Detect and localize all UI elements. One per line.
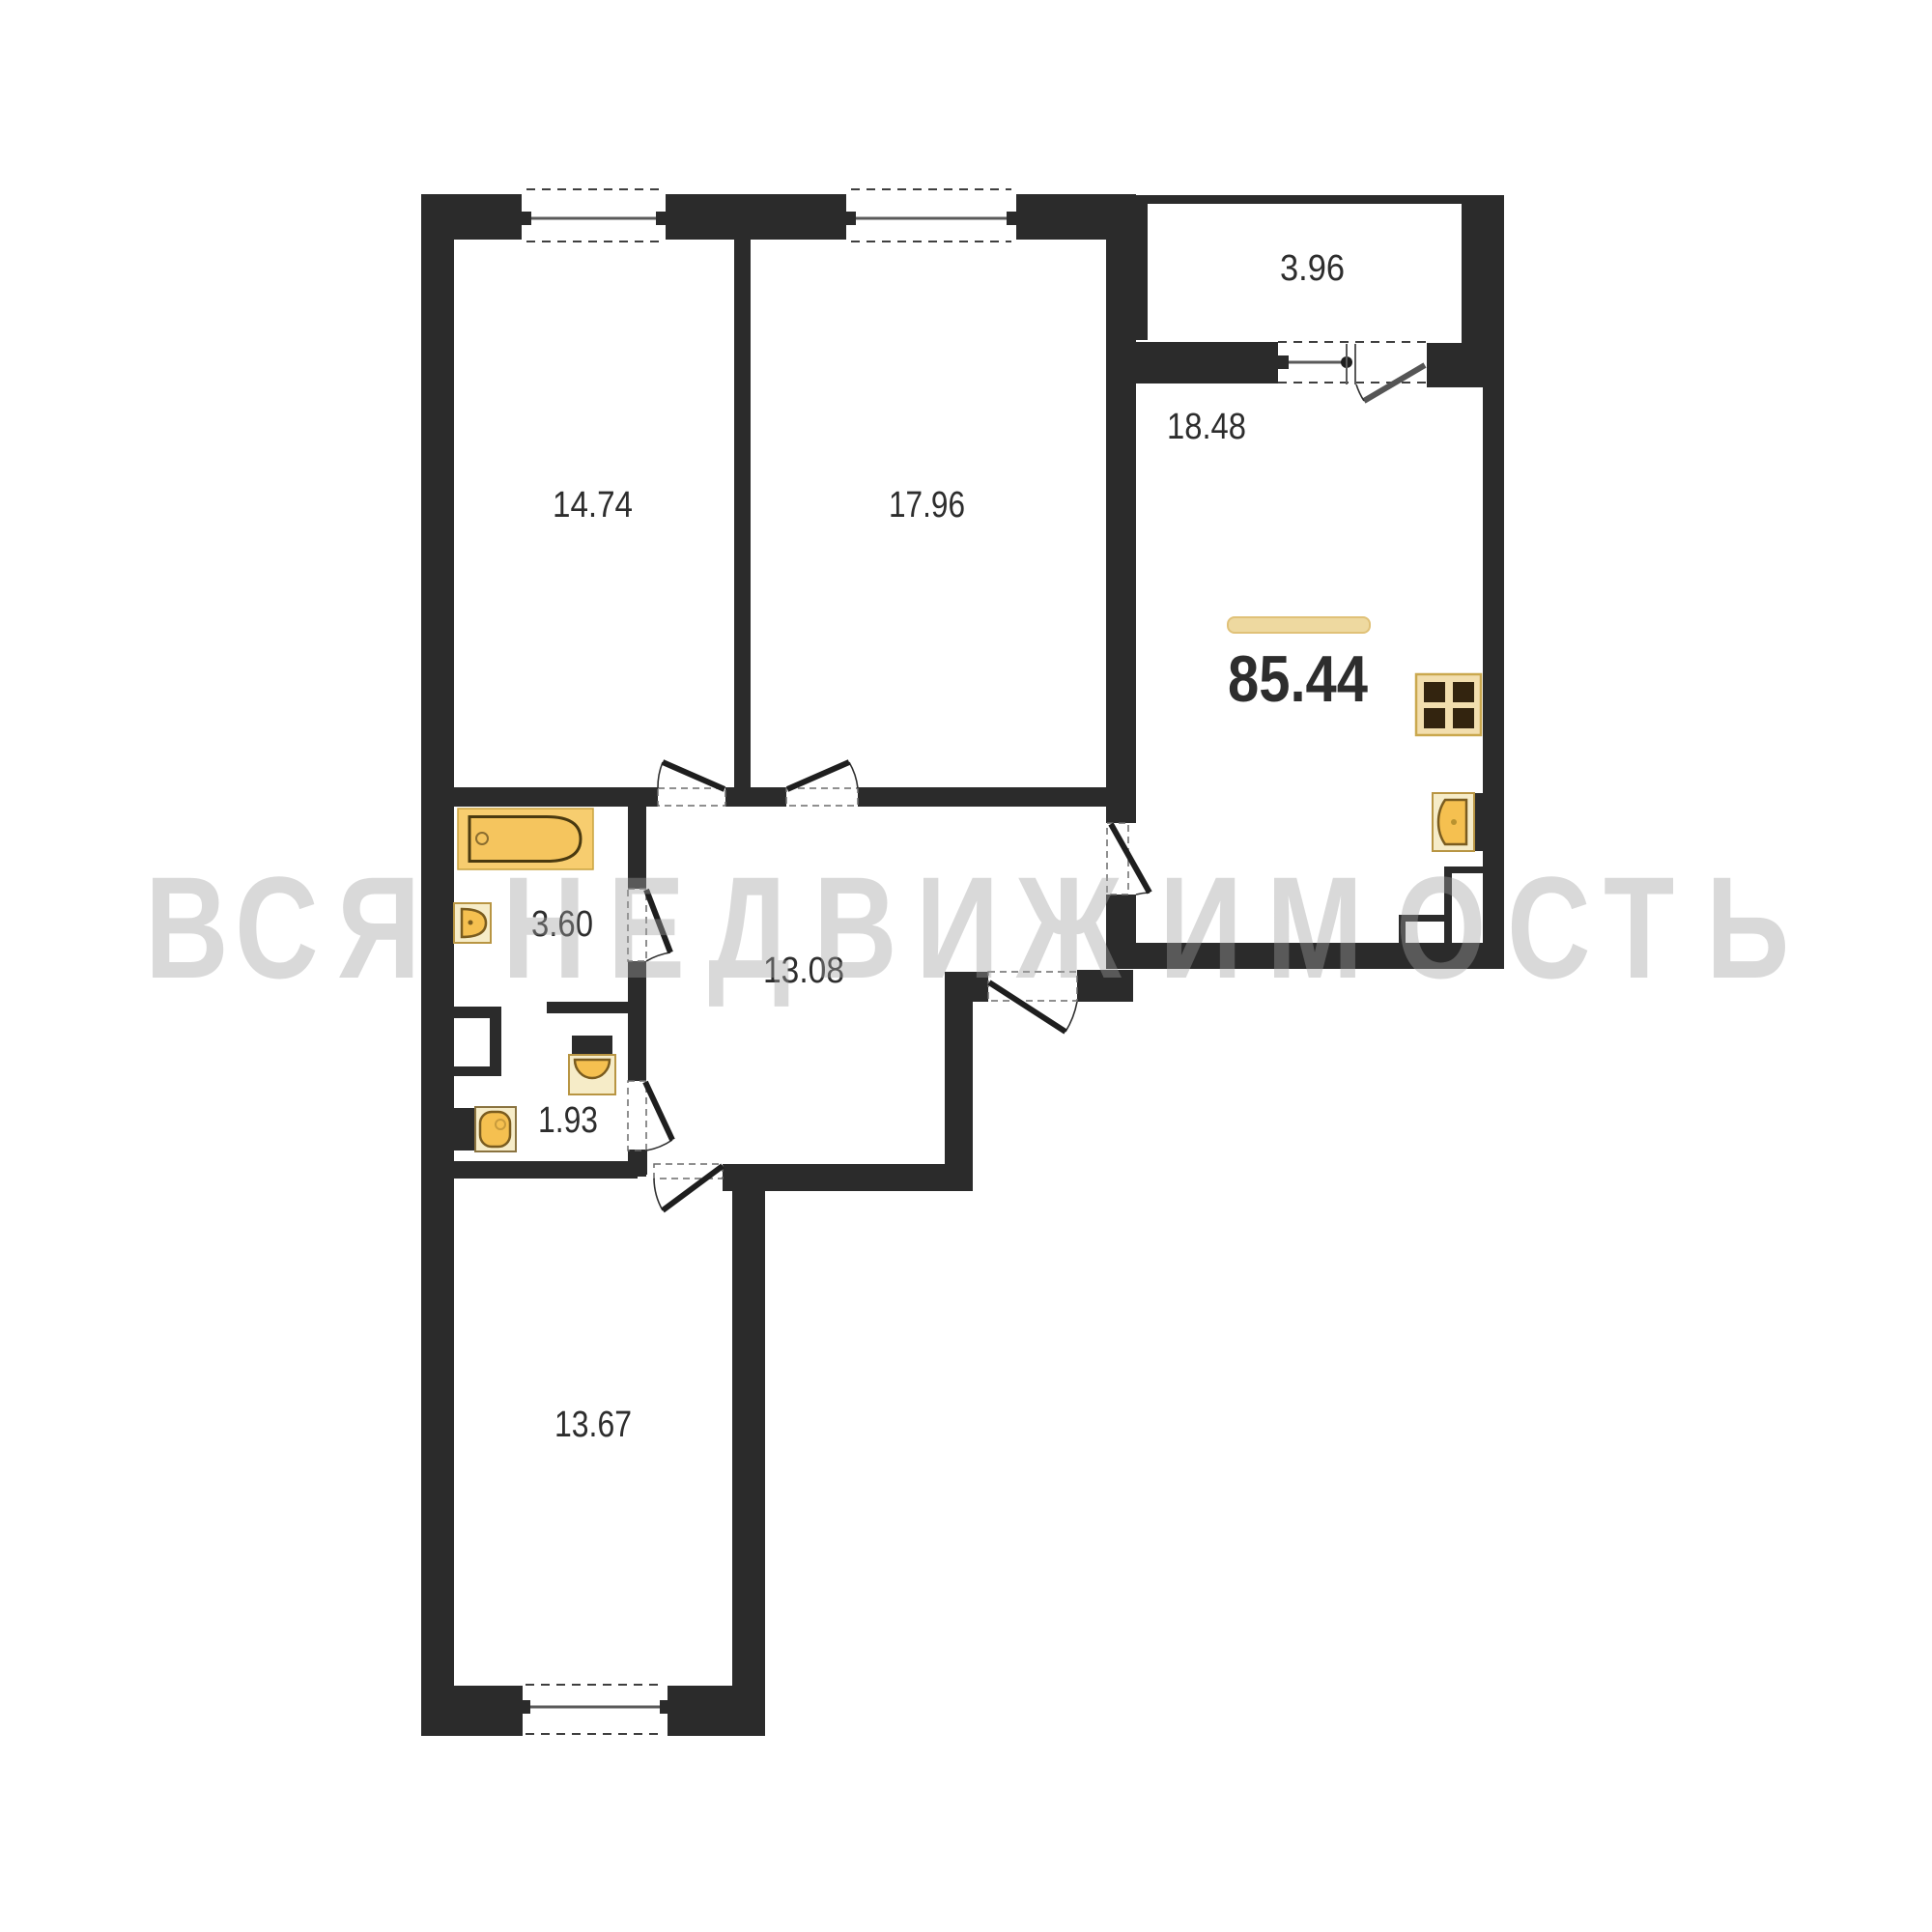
svg-text:14.74: 14.74 [553,485,633,526]
svg-text:3.96: 3.96 [1280,248,1345,289]
svg-text:85.44: 85.44 [1228,642,1368,716]
svg-text:13.67: 13.67 [554,1405,632,1445]
svg-text:1.93: 1.93 [538,1100,598,1141]
svg-text:17.96: 17.96 [889,485,965,526]
svg-text:18.48: 18.48 [1167,407,1246,447]
svg-text:ВСЯНЕДВИЖИМОСТЬ: ВСЯНЕДВИЖИМОСТЬ [145,846,1789,1009]
